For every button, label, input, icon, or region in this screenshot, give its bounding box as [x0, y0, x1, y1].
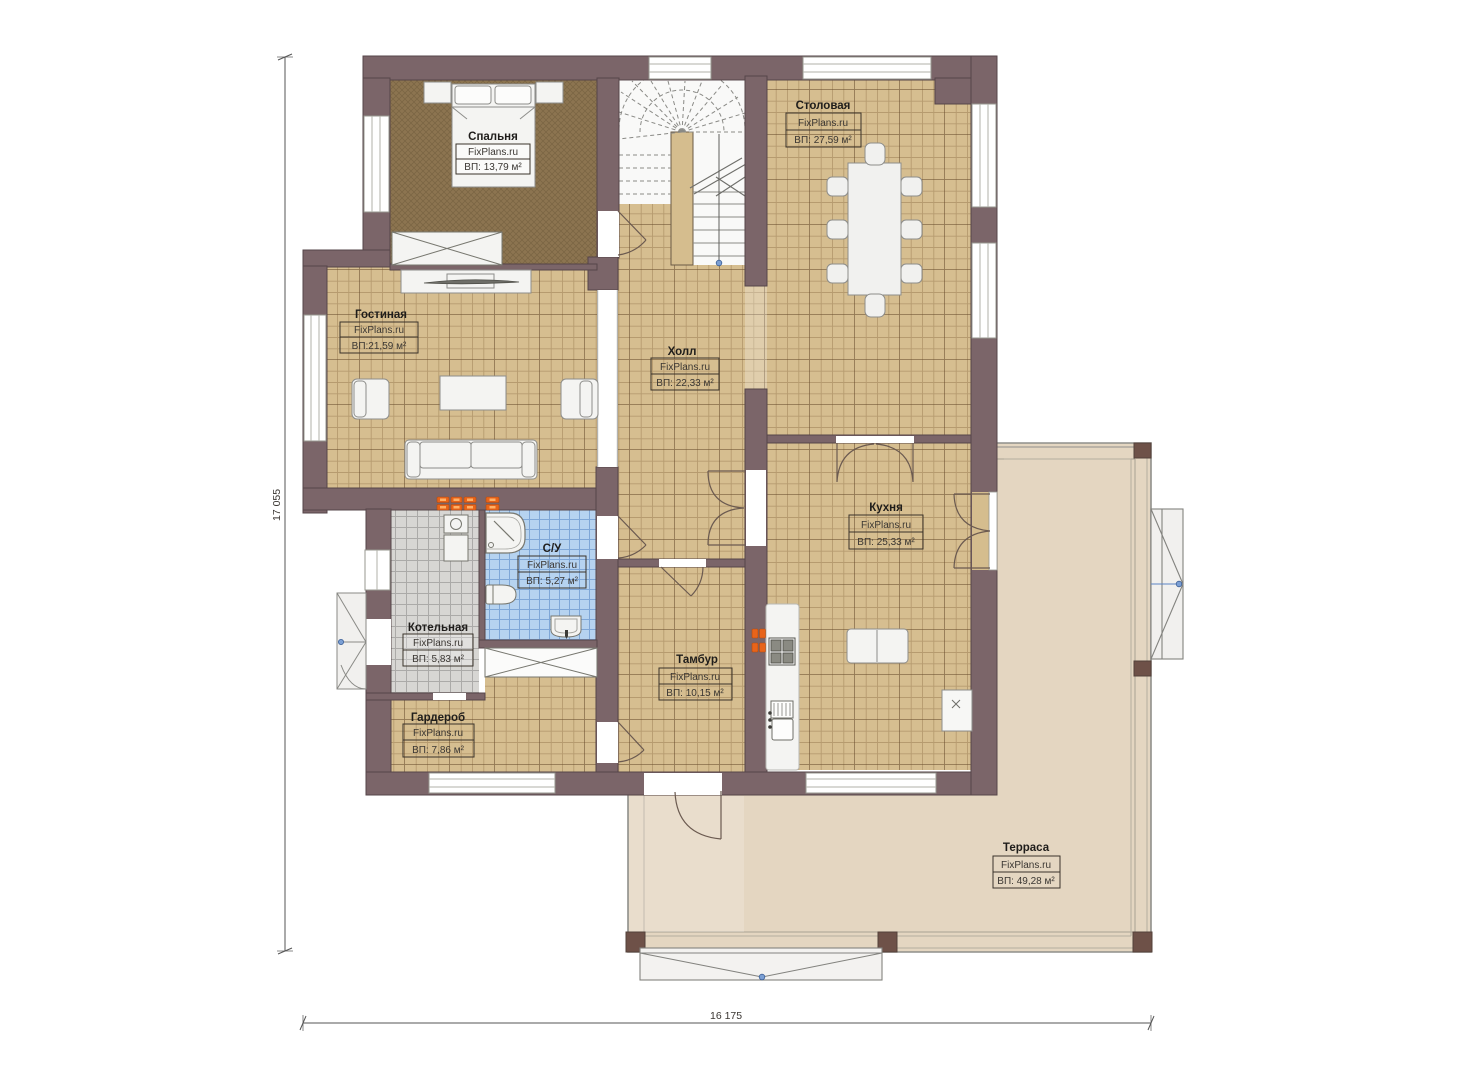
- svg-text:FixPlans.ru: FixPlans.ru: [670, 672, 720, 683]
- svg-text:ВП: 5,27 м²: ВП: 5,27 м²: [526, 576, 579, 587]
- svg-text:ВП:21,59 м²: ВП:21,59 м²: [352, 341, 407, 352]
- svg-text:Холл: Холл: [668, 346, 697, 358]
- svg-text:ВП: 27,59 м²: ВП: 27,59 м²: [794, 135, 852, 146]
- svg-text:ВП: 49,28 м²: ВП: 49,28 м²: [997, 876, 1055, 887]
- svg-text:FixPlans.ru: FixPlans.ru: [861, 520, 911, 531]
- svg-text:FixPlans.ru: FixPlans.ru: [660, 362, 710, 373]
- svg-text:ВП: 13,79 м²: ВП: 13,79 м²: [464, 162, 522, 173]
- svg-text:Столовая: Столовая: [796, 100, 851, 112]
- svg-text:Гардероб: Гардероб: [411, 712, 465, 724]
- svg-text:FixPlans.ru: FixPlans.ru: [527, 560, 577, 571]
- svg-text:FixPlans.ru: FixPlans.ru: [468, 147, 518, 158]
- svg-text:ВП: 25,33 м²: ВП: 25,33 м²: [857, 537, 915, 548]
- svg-text:ВП: 22,33 м²: ВП: 22,33 м²: [656, 378, 714, 389]
- svg-text:Кухня: Кухня: [869, 502, 903, 514]
- svg-text:FixPlans.ru: FixPlans.ru: [413, 728, 463, 739]
- svg-text:FixPlans.ru: FixPlans.ru: [1001, 860, 1051, 871]
- svg-text:Котельная: Котельная: [408, 622, 468, 634]
- svg-text:Спальня: Спальня: [468, 131, 518, 143]
- svg-text:16 175: 16 175: [710, 1010, 742, 1022]
- svg-text:ВП: 10,15 м²: ВП: 10,15 м²: [666, 688, 724, 699]
- svg-text:Гостиная: Гостиная: [355, 309, 407, 321]
- svg-text:FixPlans.ru: FixPlans.ru: [354, 325, 404, 336]
- svg-text:FixPlans.ru: FixPlans.ru: [413, 638, 463, 649]
- svg-text:17 055: 17 055: [271, 489, 283, 521]
- svg-text:Тамбур: Тамбур: [676, 654, 718, 666]
- svg-text:FixPlans.ru: FixPlans.ru: [798, 118, 848, 129]
- svg-text:ВП: 5,83 м²: ВП: 5,83 м²: [412, 654, 465, 665]
- svg-text:ВП: 7,86 м²: ВП: 7,86 м²: [412, 745, 465, 756]
- svg-text:С/У: С/У: [543, 543, 563, 555]
- svg-text:Терраса: Терраса: [1003, 842, 1050, 854]
